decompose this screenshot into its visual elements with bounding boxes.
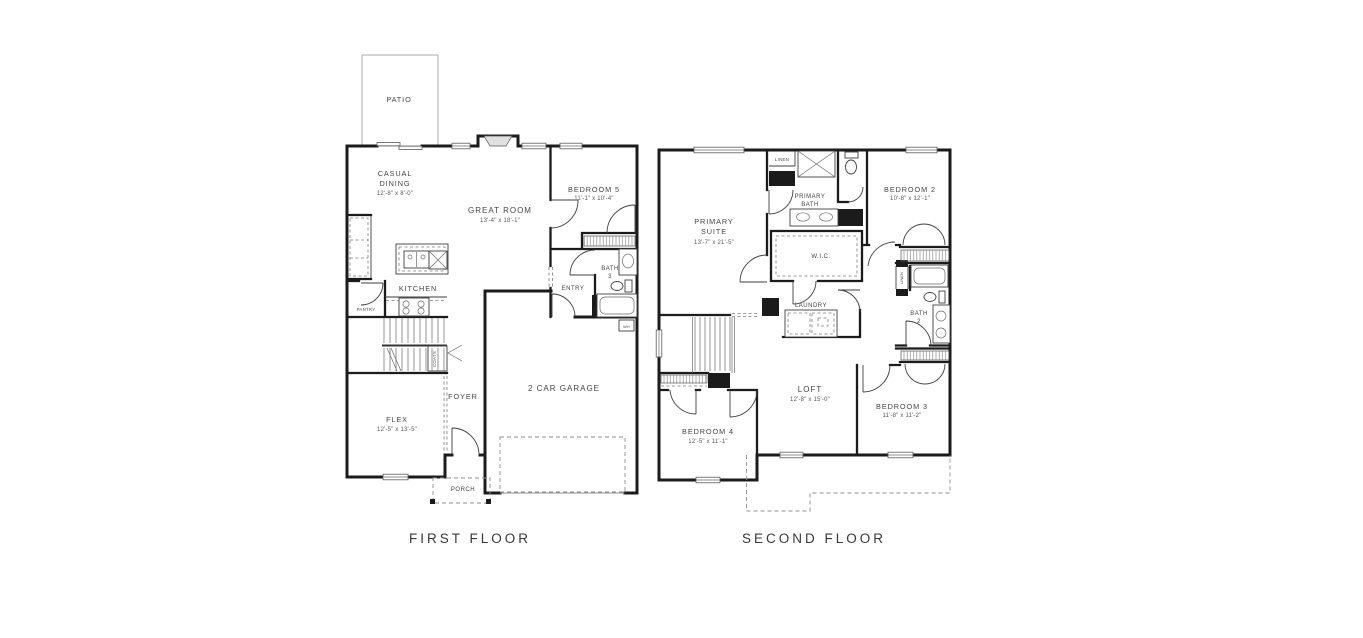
bedroom4-dims: 12'-5" x 11'-1" — [688, 439, 727, 445]
bath3-label-line2: 3 — [608, 274, 612, 280]
bedroom5-closet-shelf — [584, 236, 635, 246]
primary-suite-label-line1: PRIMARY — [694, 217, 733, 226]
washer-dryer-icon — [785, 310, 837, 337]
loft-dims: 12'-8" x 15'-0" — [790, 397, 830, 403]
laundry-label: LAUNDRY — [795, 303, 827, 309]
great-room-label: GREAT ROOM — [468, 206, 532, 215]
porch-post — [430, 499, 435, 504]
bath2-tub-icon — [911, 265, 948, 287]
dishwasher-icon — [429, 251, 447, 269]
floorplan-canvas: PATIO CASUAL DINING 12'-8" x 8'-0" GREAT… — [0, 0, 1363, 638]
foyer-cased-opening — [444, 376, 447, 452]
porch-label: PORCH — [451, 487, 475, 493]
entry-label: ENTRY — [562, 286, 585, 292]
linen2-label: LINEN — [900, 272, 904, 284]
builtin-closet-shelf-lines — [350, 240, 368, 258]
patio-slider-door — [377, 143, 400, 146]
kitchen-counter — [385, 297, 447, 316]
bath2-label-line1: BATH — [910, 311, 928, 317]
casual-dining-label-line1: CASUAL — [378, 169, 413, 178]
casual-dining-label-line2: DINING — [380, 179, 411, 188]
bedroom5-label: BEDROOM 5 — [568, 185, 620, 194]
bedroom4-label: BEDROOM 4 — [682, 427, 734, 436]
floorplan-svg: PATIO CASUAL DINING 12'-8" x 8'-0" GREAT… — [0, 0, 1363, 638]
primary-suite-label-line2: SUITE — [701, 227, 727, 236]
primary-suite-dims: 13'-7" x 21'-5" — [694, 240, 734, 246]
bedroom5-dims: 11'-1" x 10'-4" — [574, 196, 613, 202]
second-floor-plan: PRIMARY SUITE 13'-7" x 21'-5" LINEN PRIM… — [656, 147, 950, 511]
stair-newel — [708, 373, 730, 388]
bedroom2-closet-shelf — [901, 250, 949, 261]
bedroom3-closet-shelf — [901, 351, 949, 360]
bath2-fixtures — [911, 265, 950, 343]
primary-vanity-sinks-icon — [790, 209, 838, 226]
wic-label: W.I.C. — [811, 254, 830, 260]
first-floor-stairs — [382, 318, 447, 371]
bath3-sink-icon — [619, 249, 637, 275]
roof-below-outline — [747, 455, 951, 511]
bath2-vanity-icon — [933, 305, 950, 343]
second-floor-stairs — [693, 314, 759, 374]
primary-toilet-icon — [845, 152, 858, 174]
garage-label: 2 CAR GARAGE — [528, 384, 600, 393]
loft-label: LOFT — [798, 385, 822, 394]
shower-icon — [798, 151, 835, 177]
foyer-label: FOYER — [448, 392, 478, 401]
porch-post2 — [486, 499, 491, 504]
water-heater-label: WH — [623, 325, 630, 329]
first-floor-caption: FIRST FLOOR — [409, 531, 531, 546]
kitchen-label: KITCHEN — [399, 284, 437, 293]
flex-label: FLEX — [386, 415, 408, 424]
bedroom4-closet-shelf — [661, 375, 707, 383]
bath3-fixtures — [592, 249, 637, 317]
casual-dining-dims: 12'-8" x 8'-0" — [377, 191, 413, 197]
patio-slider-door2 — [399, 146, 422, 149]
kitchen-island — [396, 244, 448, 274]
open-to-below-line — [732, 314, 758, 317]
bath3-label-line1: BATH — [601, 266, 619, 272]
primary-bath-label-line2: BATH — [801, 202, 819, 208]
patio-label: PATIO — [386, 95, 411, 104]
bedroom2-label: BEDROOM 2 — [884, 185, 936, 194]
second-floor-caption: SECOND FLOOR — [742, 531, 886, 546]
bath3-tub-icon — [597, 294, 637, 317]
bedroom2-dims: 10'-8" x 12'-1" — [890, 196, 930, 202]
bath3-toilet-icon — [611, 280, 632, 292]
primary-bath-label-line1: PRIMARY — [795, 194, 826, 200]
bedroom3-label: BEDROOM 3 — [876, 402, 928, 411]
builtin-closet-shelves — [350, 218, 368, 276]
fireplace-icon — [484, 136, 512, 146]
first-floor-plan: PATIO CASUAL DINING 12'-8" x 8'-0" GREAT… — [347, 55, 637, 504]
bedroom3-dims: 11'-8" x 11'-2" — [882, 413, 921, 419]
great-room-dims: 13'-4" x 18'-1" — [480, 218, 520, 224]
bath2-label-line2: 2 — [917, 319, 921, 325]
bath2-toilet-icon — [924, 291, 945, 303]
garage-door-outline — [500, 437, 625, 492]
range-icon — [399, 298, 429, 316]
flex-dims: 12'-5" x 13'-5" — [377, 427, 417, 433]
entry-cased-opening — [549, 267, 553, 287]
kitchen-sink-icon — [404, 251, 429, 268]
coats-label: COATS — [432, 351, 437, 367]
linen-label: LINEN — [775, 157, 789, 162]
pantry-label: PANTRY — [357, 307, 376, 312]
